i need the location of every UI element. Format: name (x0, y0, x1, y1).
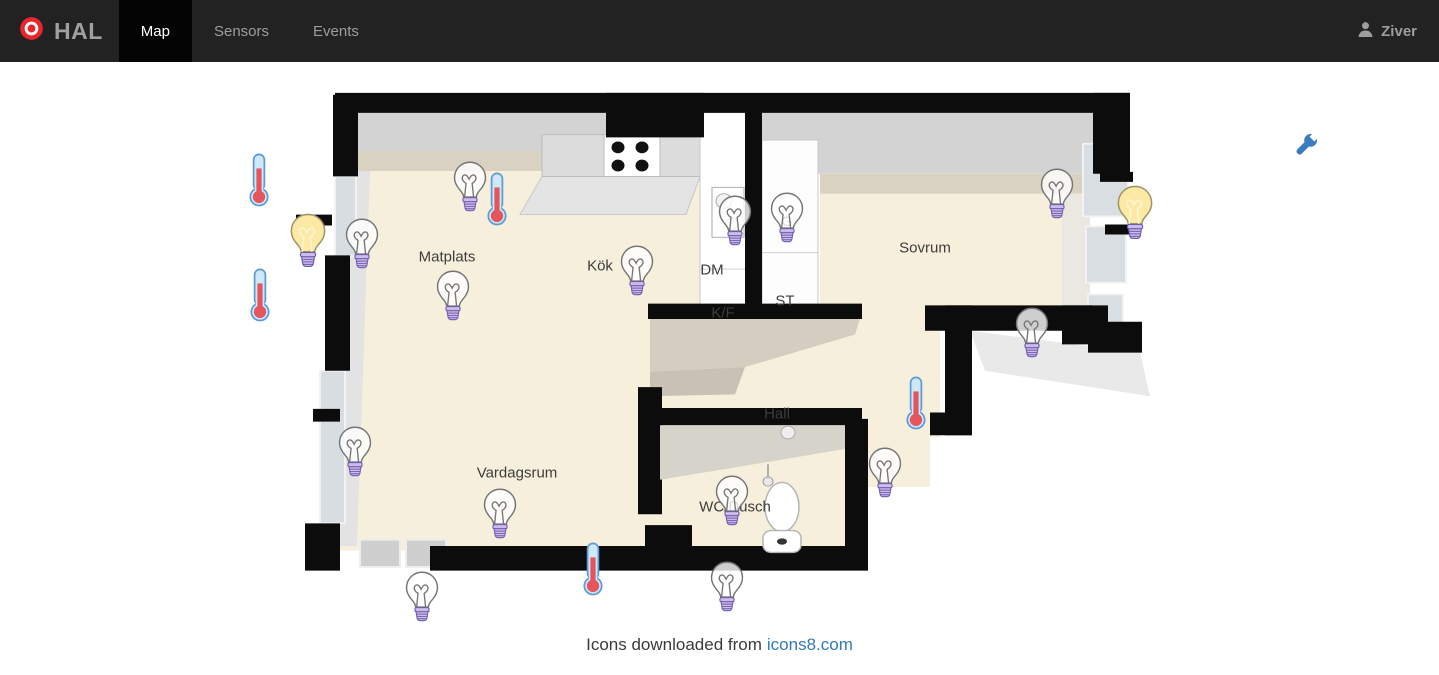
light-wc-bottom-light-bulb-icon[interactable] (706, 560, 748, 614)
temp-left-upper-thermometer-icon[interactable] (246, 153, 272, 207)
sensor-layer (0, 62, 1439, 675)
map-view: MatplatsKökDMK/FSTGSovrumHallVardagsrumW… (0, 62, 1439, 675)
brand[interactable]: HAL (0, 0, 119, 62)
light-vardagsrum-light-bulb-icon[interactable] (479, 487, 521, 541)
temp-hall-thermometer-icon[interactable] (903, 376, 929, 430)
attribution-text: Icons downloaded from (586, 635, 762, 654)
navbar: HAL Map Sensors Events Ziver (0, 0, 1439, 62)
brand-title: HAL (54, 18, 103, 45)
light-kok-light-bulb-icon[interactable] (616, 244, 658, 298)
light-matplats-wall-light-bulb-icon[interactable] (341, 217, 383, 271)
light-matplats-light-bulb-icon[interactable] (432, 269, 474, 323)
attribution: Icons downloaded fromicons8.com (0, 635, 1439, 655)
target-logo-icon (18, 15, 45, 47)
person-icon (1357, 21, 1374, 42)
user-name: Ziver (1381, 23, 1417, 40)
light-hall-light-bulb-icon[interactable] (864, 446, 906, 500)
icons8-link[interactable]: icons8.com (767, 635, 853, 654)
light-dm-light-bulb-icon[interactable] (714, 194, 756, 248)
light-wc-light-bulb-icon[interactable] (711, 474, 753, 528)
wrench-icon (1292, 146, 1320, 163)
light-vardagsrum-bottom-light-bulb-icon[interactable] (401, 570, 443, 624)
map-settings-button[interactable] (1292, 131, 1320, 159)
light-vardagsrum-window-light-bulb-icon[interactable] (334, 425, 376, 479)
tab-events[interactable]: Events (291, 0, 381, 62)
tab-sensors[interactable]: Sensors (192, 0, 291, 62)
temp-left-lower-thermometer-icon[interactable] (247, 268, 273, 322)
user-menu[interactable]: Ziver (1357, 0, 1439, 62)
temp-matplats-thermometer-icon[interactable] (484, 172, 510, 226)
light-sovrum-1-light-bulb-icon[interactable] (1036, 167, 1078, 221)
nav-tabs: Map Sensors Events (119, 0, 381, 62)
tab-map[interactable]: Map (119, 0, 192, 62)
light-sovrum-window-light-bulb-icon[interactable] (1112, 184, 1158, 242)
temp-vardagsrum-thermometer-icon[interactable] (580, 542, 606, 596)
light-matplats-wall-on-light-bulb-icon[interactable] (285, 212, 331, 270)
light-sovrum-2-light-bulb-icon[interactable] (1011, 306, 1053, 360)
light-garderob-light-bulb-icon[interactable] (766, 191, 808, 245)
